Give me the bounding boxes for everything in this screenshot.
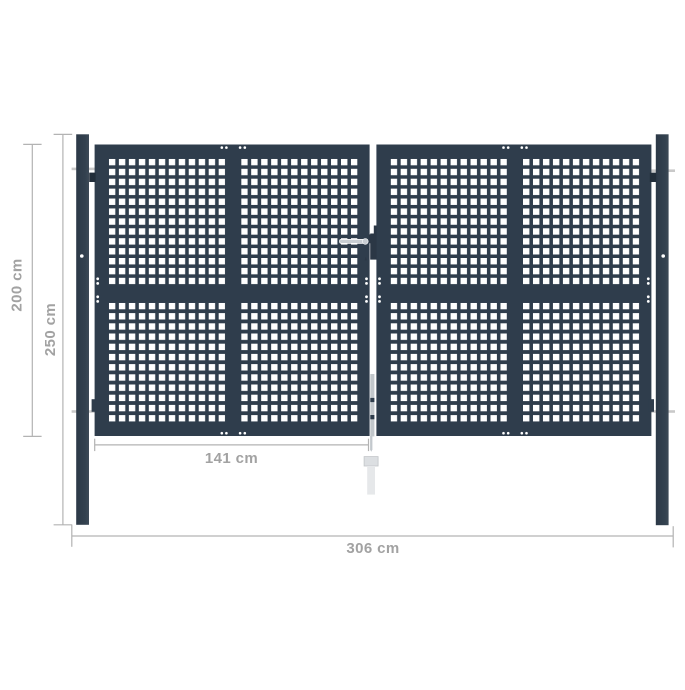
svg-text:250 cm: 250 cm xyxy=(42,303,59,356)
svg-text:306 cm: 306 cm xyxy=(346,540,399,557)
svg-text:200 cm: 200 cm xyxy=(9,258,26,311)
svg-text:141 cm: 141 cm xyxy=(205,450,258,467)
